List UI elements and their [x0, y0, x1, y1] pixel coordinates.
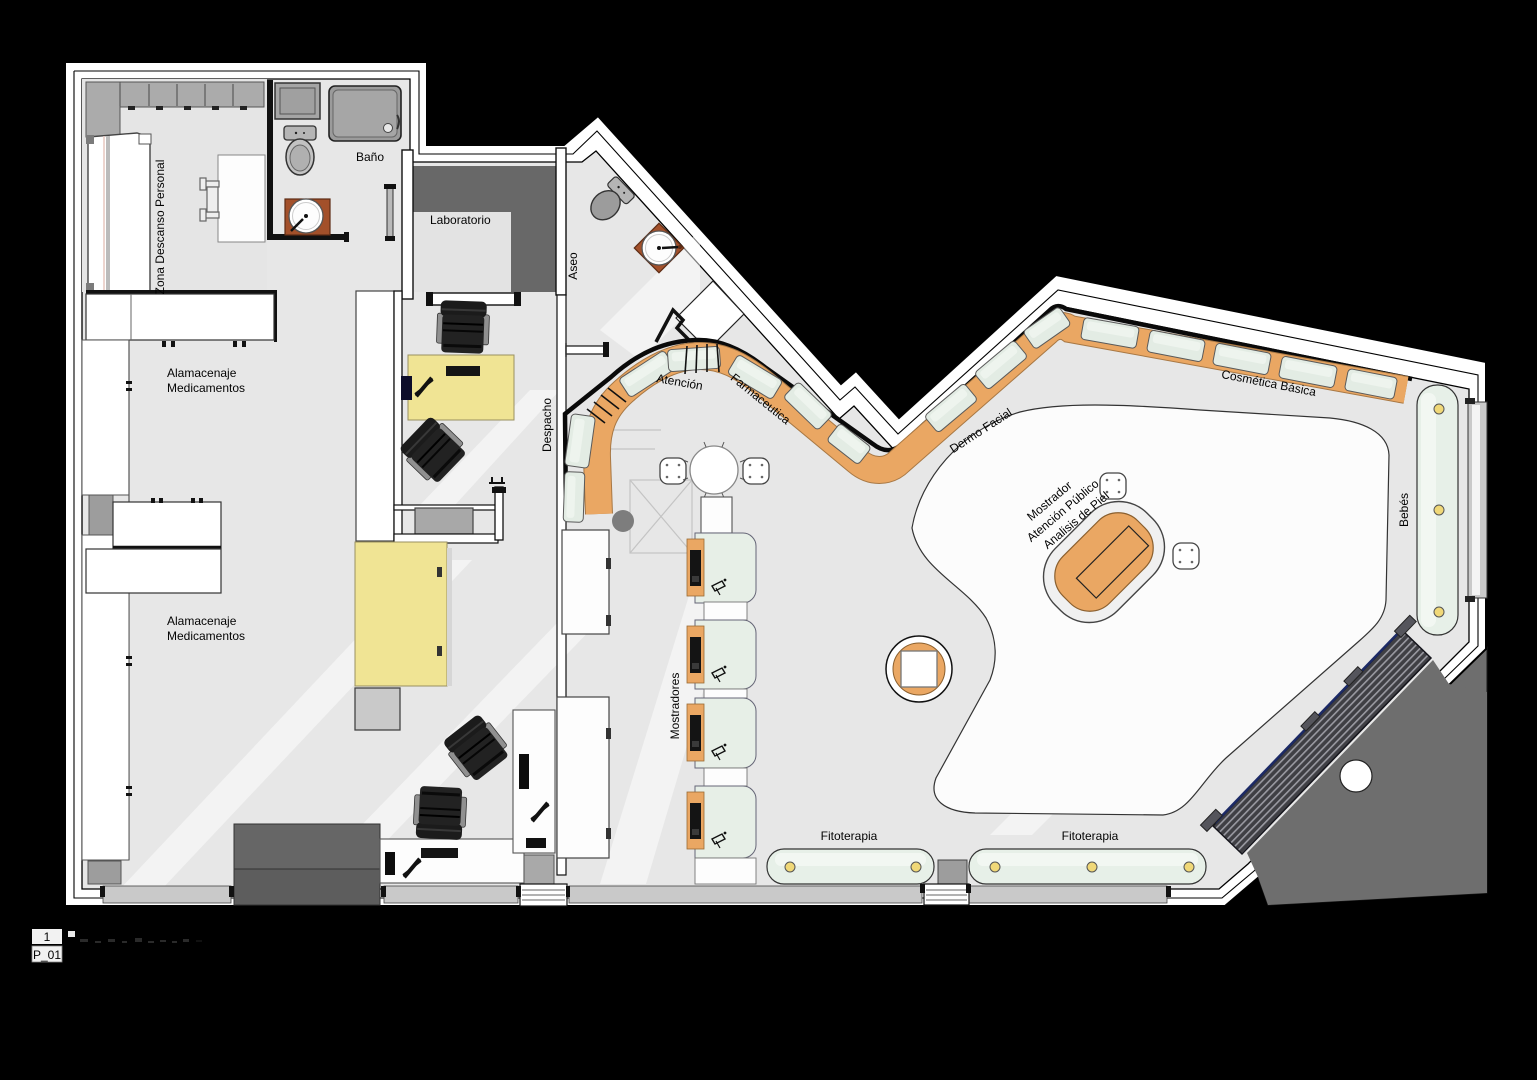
svg-text:Bebés: Bebés	[1397, 493, 1411, 527]
svg-text:Mostradores: Mostradores	[668, 673, 682, 740]
svg-text:P_01: P_01	[33, 948, 61, 962]
svg-text:1: 1	[44, 930, 51, 944]
svg-text:Alamacenaje: Alamacenaje	[167, 614, 237, 628]
svg-text:Zona Descanso Personal: Zona Descanso Personal	[153, 160, 167, 295]
svg-text:Medicamentos: Medicamentos	[167, 629, 245, 643]
svg-text:Fitoterapia: Fitoterapia	[1062, 829, 1119, 843]
svg-text:Despacho: Despacho	[540, 398, 554, 452]
svg-text:Alamacenaje: Alamacenaje	[167, 366, 237, 380]
svg-text:Fitoterapia: Fitoterapia	[821, 829, 878, 843]
svg-text:Baño: Baño	[356, 150, 384, 164]
svg-text:Laboratorio: Laboratorio	[430, 213, 491, 227]
svg-text:Medicamentos: Medicamentos	[167, 381, 245, 395]
svg-text:Aseo: Aseo	[566, 252, 580, 280]
